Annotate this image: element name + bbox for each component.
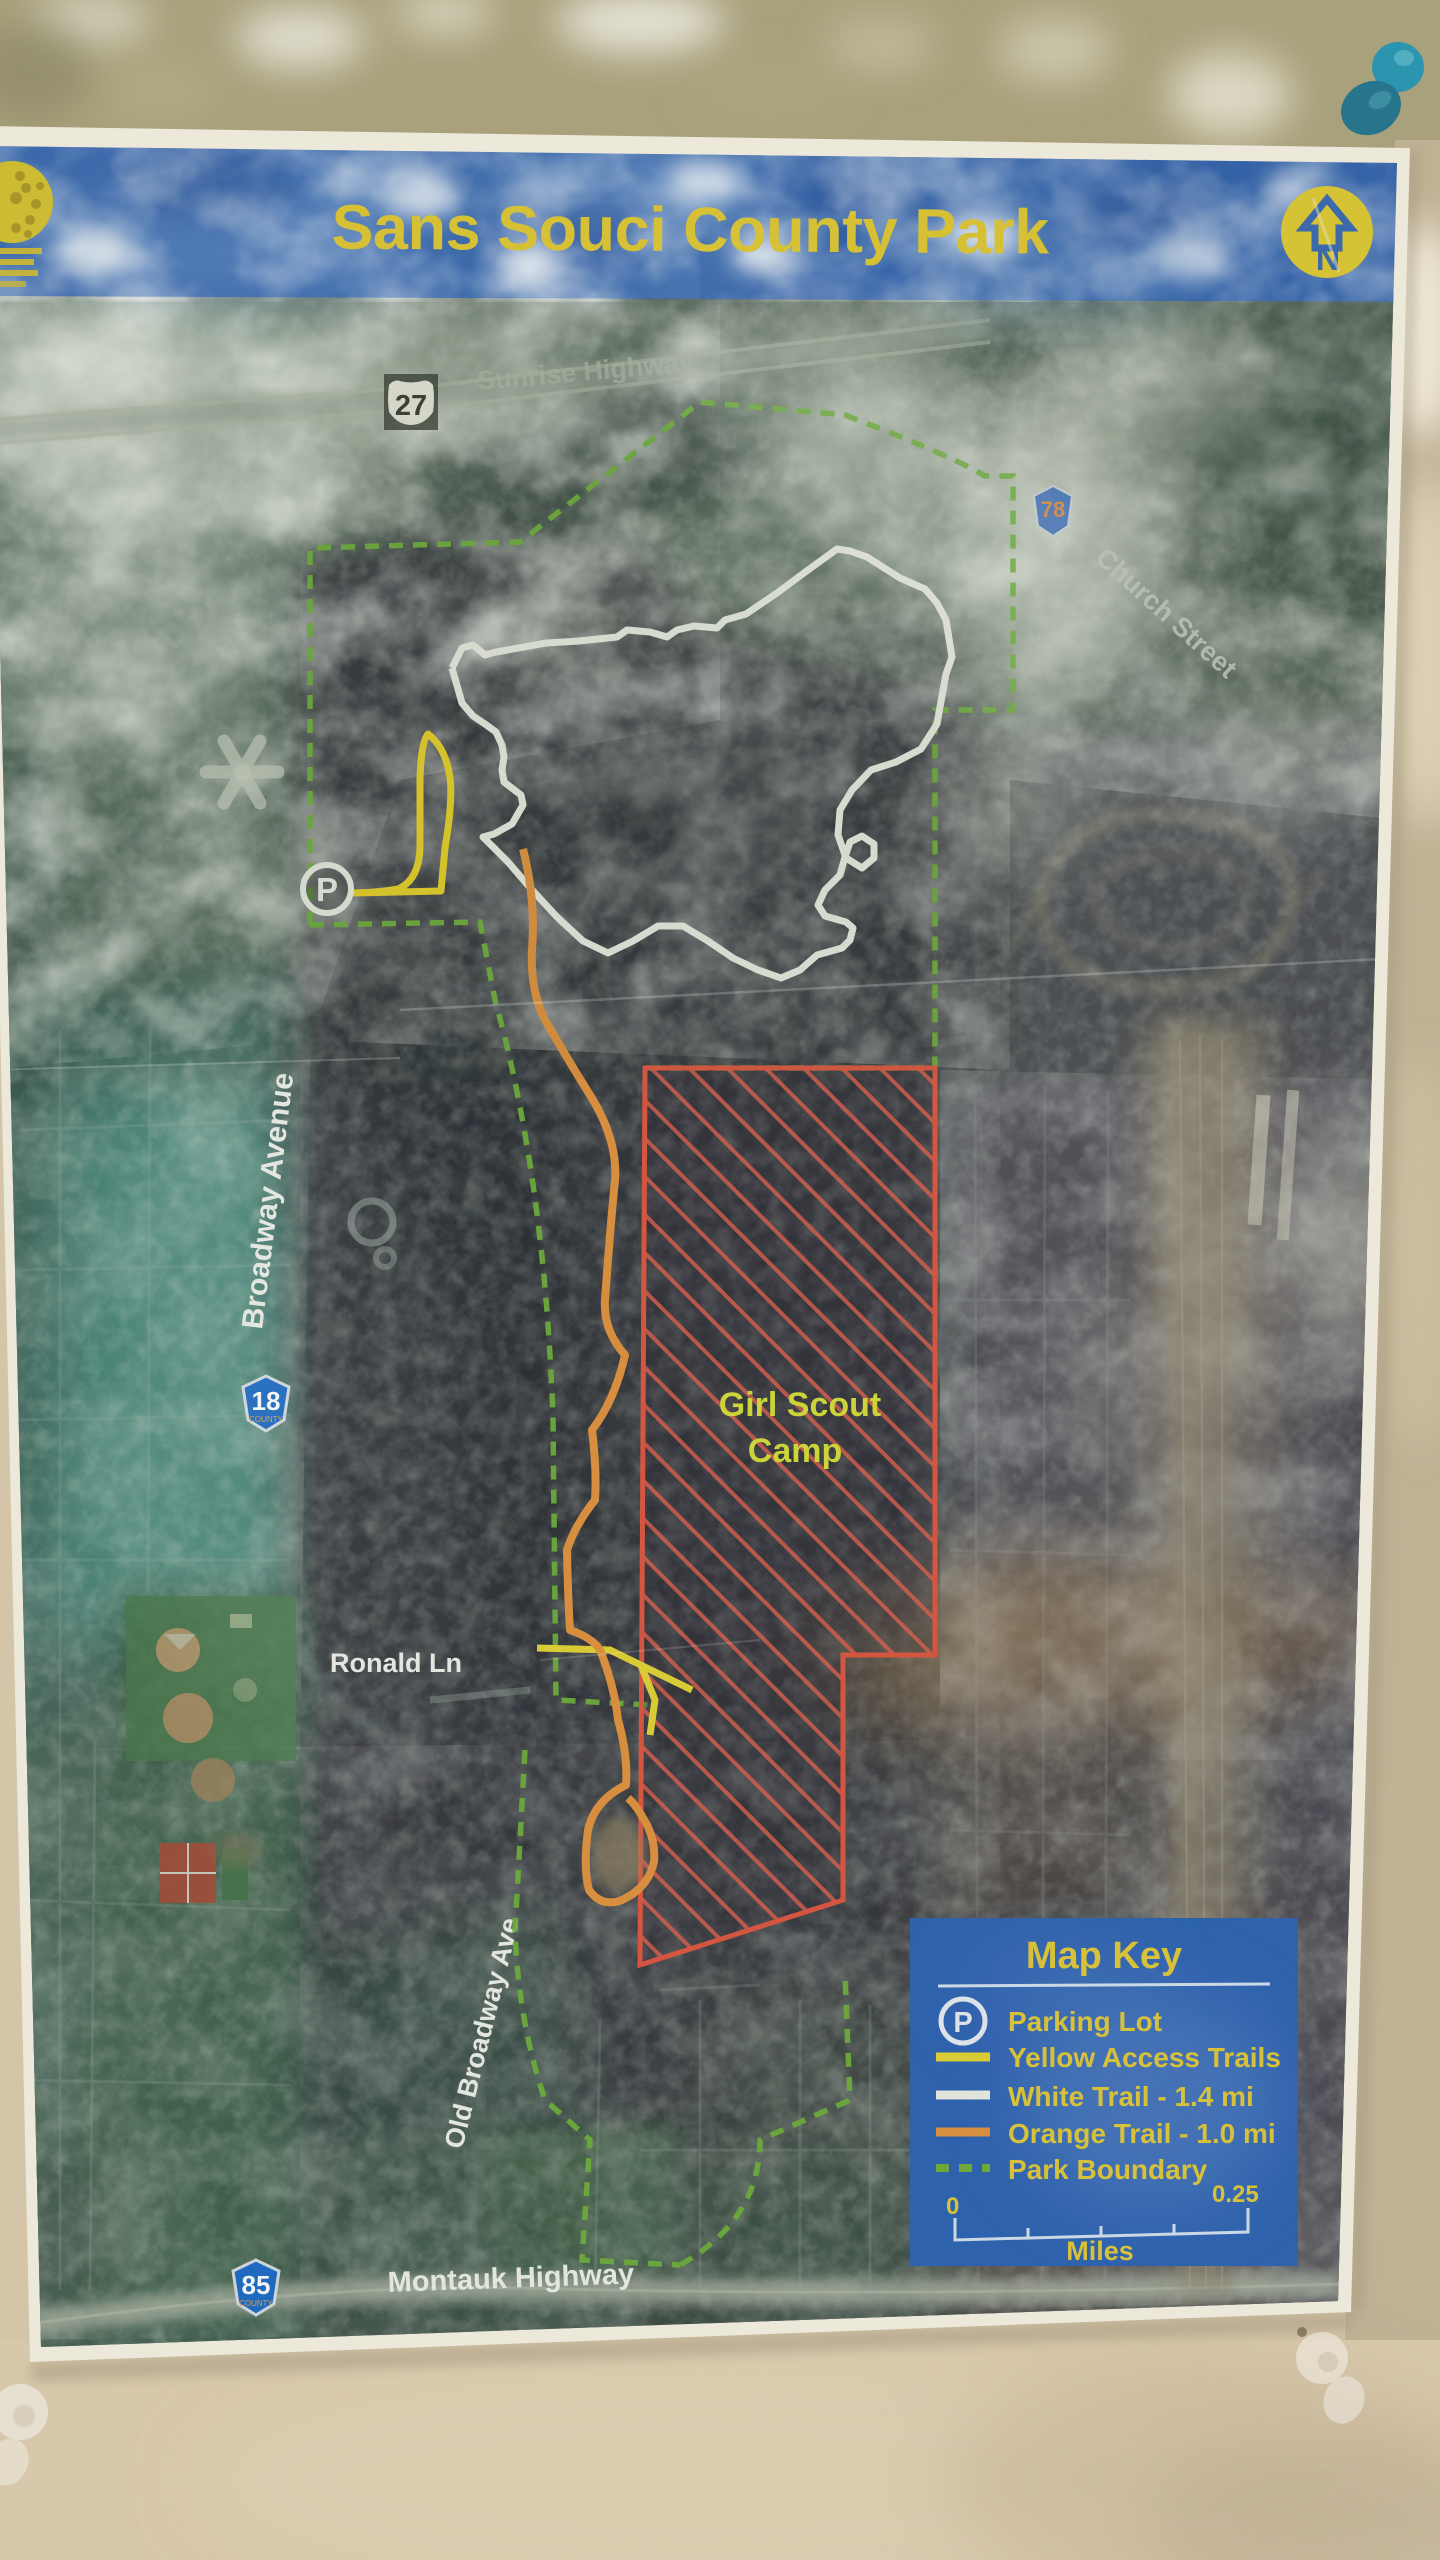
- svg-text:Sans Souci County Park: Sans Souci County Park: [331, 192, 1050, 267]
- svg-text:N: N: [1316, 240, 1341, 278]
